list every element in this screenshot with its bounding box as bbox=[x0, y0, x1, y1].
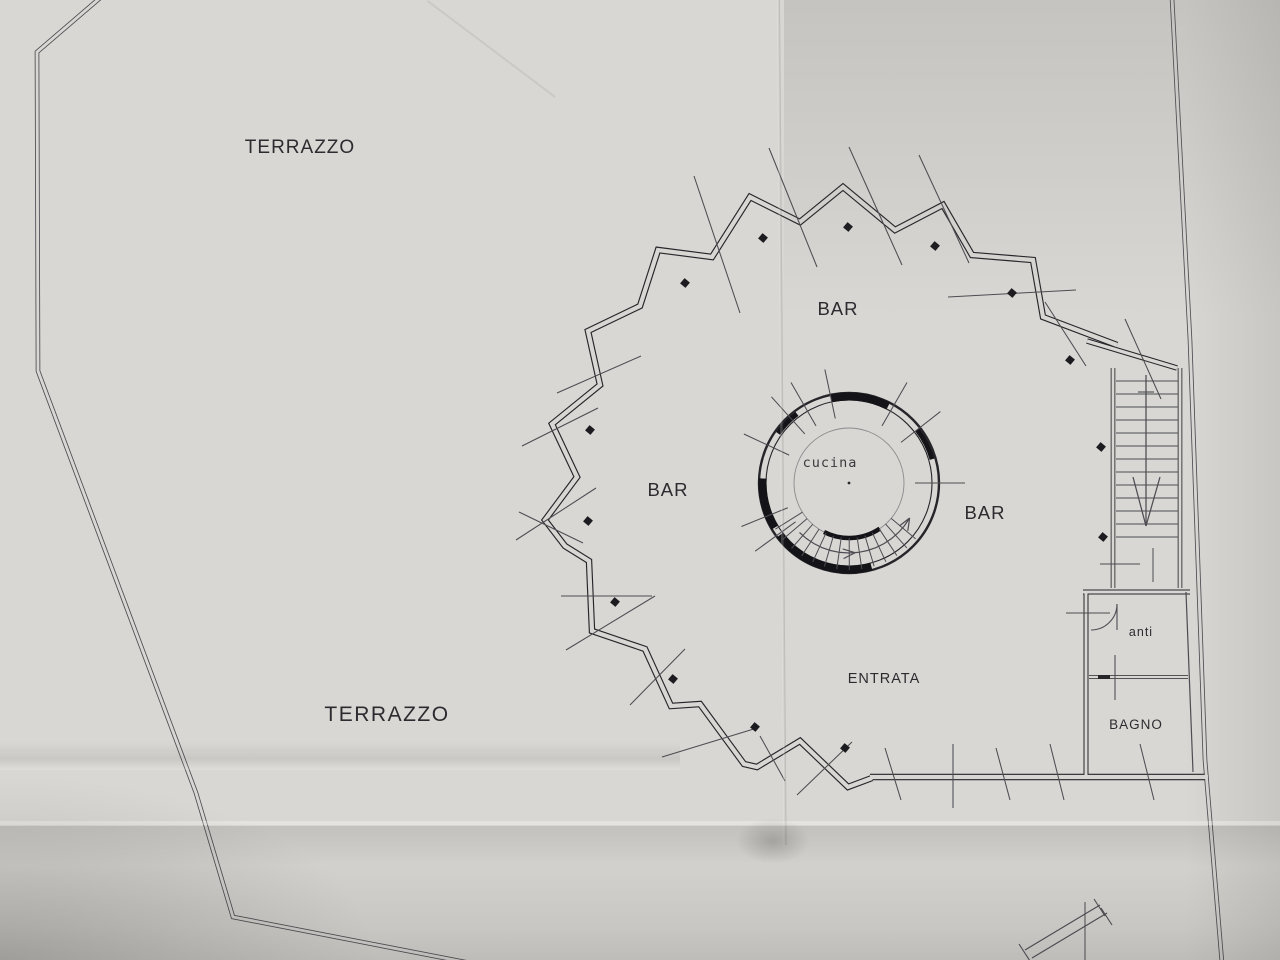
column-post bbox=[758, 233, 768, 243]
thin-line-layer bbox=[516, 147, 1193, 960]
column-post bbox=[1098, 532, 1108, 542]
column-post bbox=[930, 241, 940, 251]
wall-dark-layer bbox=[37, 0, 1222, 960]
window-tick bbox=[662, 728, 757, 757]
stair-arrow-head bbox=[1146, 477, 1160, 526]
spiral-tread bbox=[802, 529, 819, 556]
window-tick bbox=[849, 147, 902, 265]
window-tick bbox=[630, 649, 685, 705]
label-entrata: ENTRATA bbox=[848, 671, 921, 687]
spiral-tread bbox=[837, 537, 842, 569]
bagno-right-wall bbox=[1186, 592, 1193, 772]
column-post bbox=[668, 674, 678, 684]
spiral-tread bbox=[872, 533, 886, 562]
column-post bbox=[610, 597, 620, 607]
window-tick bbox=[1140, 744, 1154, 800]
site-wall-cap bbox=[1019, 944, 1030, 960]
label-terrazzo-top: TERRAZZO bbox=[245, 137, 355, 158]
label-cucina: cucina bbox=[803, 455, 858, 471]
wall-core-layer bbox=[37, 0, 1222, 960]
column-post bbox=[1096, 442, 1106, 452]
photographed-floor-plan: TERRAZZO TERRAZZO BAR BAR BAR ENTRATA cu… bbox=[0, 0, 1280, 960]
window-tick bbox=[566, 596, 655, 650]
spiral-tread bbox=[879, 529, 897, 556]
circle-spoke-tick bbox=[791, 383, 816, 426]
label-bar-top: BAR bbox=[817, 298, 858, 319]
site-wall-line bbox=[1032, 913, 1107, 958]
door-swing-arc bbox=[1091, 604, 1117, 630]
column-post bbox=[583, 516, 593, 526]
column-post bbox=[680, 278, 690, 288]
spiral-tread bbox=[792, 524, 813, 548]
stair-arrow-head bbox=[1133, 477, 1146, 526]
site-wall-line bbox=[1025, 905, 1100, 950]
sawtooth-wall bbox=[545, 187, 1117, 787]
column-post bbox=[843, 222, 853, 232]
column-post bbox=[585, 425, 595, 435]
spiral-tread bbox=[857, 537, 862, 569]
stair-top-wall-core bbox=[1087, 341, 1177, 368]
floor-plan-drawing: TERRAZZO TERRAZZO BAR BAR BAR ENTRATA cu… bbox=[0, 0, 1280, 960]
spiral-tread bbox=[886, 524, 907, 548]
column-post bbox=[1007, 288, 1017, 298]
site-wall-cap bbox=[1101, 908, 1112, 925]
wall-fill-arc bbox=[763, 478, 775, 527]
circle-spoke-tick bbox=[744, 434, 789, 455]
sawtooth-wall-core bbox=[545, 187, 1117, 787]
window-tick bbox=[694, 176, 740, 313]
column-post bbox=[1065, 355, 1075, 365]
window-tick bbox=[760, 736, 785, 781]
label-bar-left: BAR bbox=[647, 479, 688, 500]
column-post bbox=[750, 722, 760, 732]
label-bar-right: BAR bbox=[964, 502, 1005, 523]
stair-stringer-arc bbox=[824, 529, 880, 538]
label-bagno: BAGNO bbox=[1109, 717, 1163, 732]
label-terrazzo-bottom: TERRAZZO bbox=[324, 703, 449, 726]
spiral-tread bbox=[813, 533, 826, 562]
label-anti: anti bbox=[1129, 625, 1153, 639]
window-tick bbox=[919, 155, 969, 263]
window-tick bbox=[1050, 744, 1064, 800]
cucina-center-dot bbox=[848, 482, 851, 485]
